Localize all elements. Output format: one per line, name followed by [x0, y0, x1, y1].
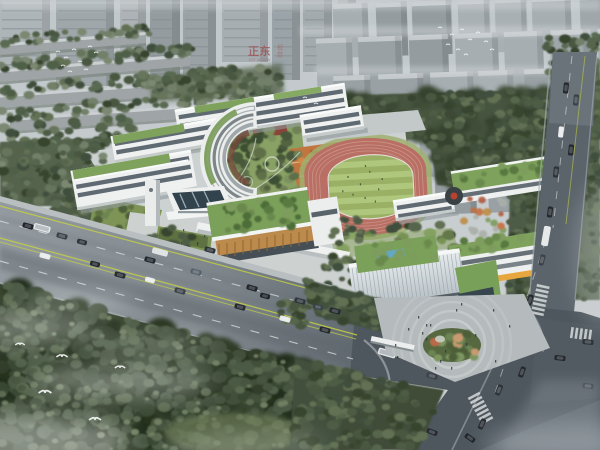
svg-text:觉: 觉 — [277, 51, 283, 59]
svg-text:EST DESIGN: EST DESIGN — [249, 58, 271, 62]
svg-text:正东: 正东 — [248, 44, 271, 58]
svg-text:视: 视 — [277, 44, 283, 52]
